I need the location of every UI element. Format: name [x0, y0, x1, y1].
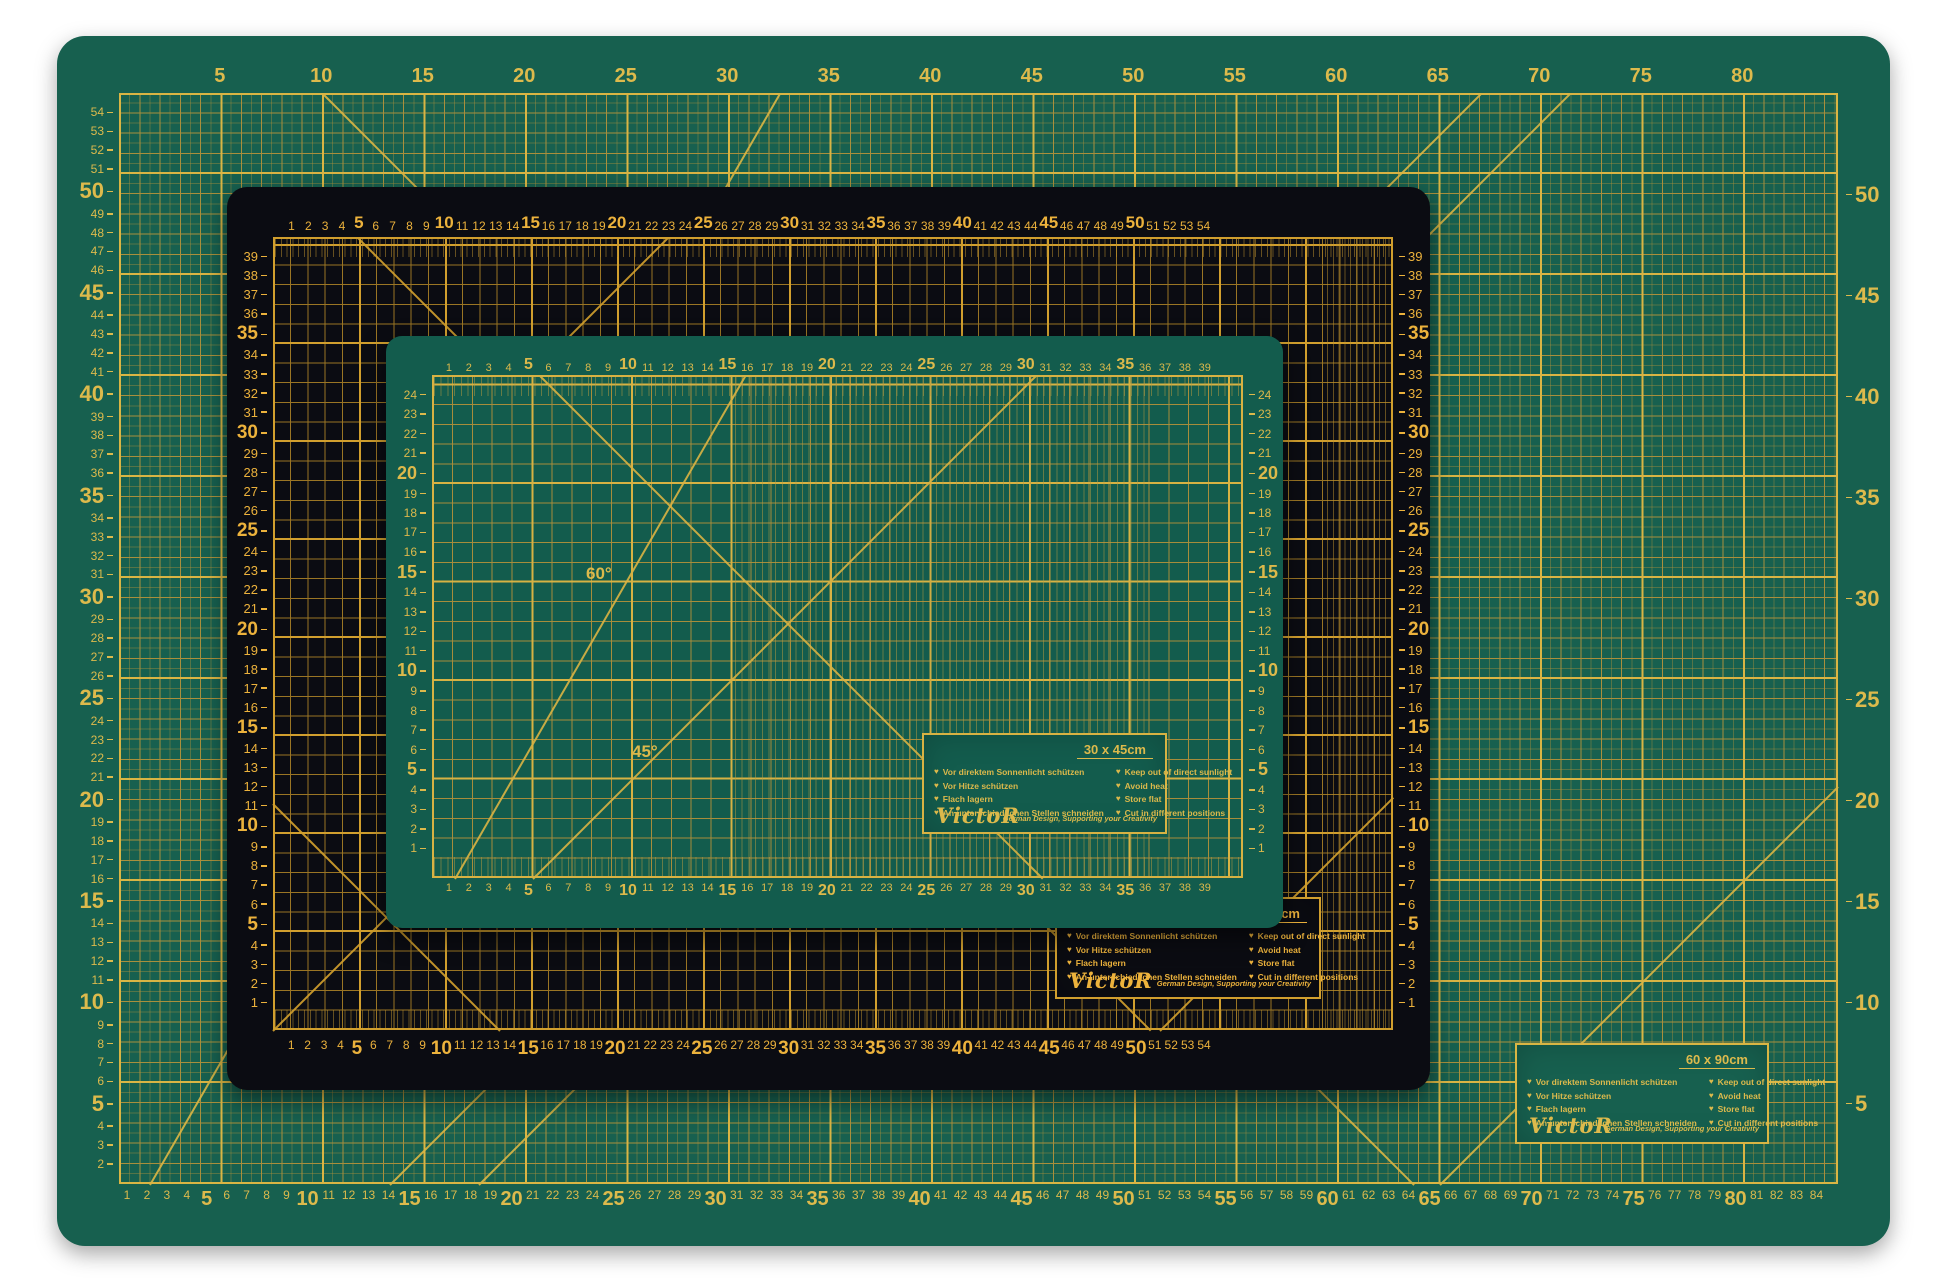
brand-tagline: German Design, Supporting your Creativit…	[1157, 979, 1311, 988]
brand-logo: VictoR	[1529, 1113, 1613, 1138]
ruler-right-black-mat: 3938373635343332313029282726252423222120…	[1399, 247, 1430, 1012]
ruler-top-large-mat: 5101520253035404550556065707580	[169, 56, 1793, 88]
ruler-bottom-black-mat: 1234567891011121314151617181920212223242…	[283, 1038, 1212, 1078]
small-green-cutting-mat: 60° 45° 12345678910111213141516171819202…	[386, 336, 1283, 928]
brand-tagline: German Design, Supporting your Creativit…	[1003, 814, 1157, 823]
care-instructions-english: ♥Keep out of direct sunlight♥Avoid heat♥…	[1116, 766, 1232, 820]
ruler-bottom-small-mat: 1234567891011121314151617181920212223242…	[439, 882, 1215, 912]
info-card-small-mat: 30 x 45cm ♥Vor direktem Sonnenlicht schü…	[922, 733, 1167, 834]
angle-label-45: 45°	[632, 742, 658, 762]
care-instructions-english: ♥Keep out of direct sunlight♥Avoid heat♥…	[1249, 930, 1365, 984]
ruler-left-black-mat: 3938373635343332313029282726252423222120…	[229, 247, 267, 1012]
size-label: 30 x 45cm	[1077, 742, 1153, 759]
brand-tagline: German Design, Supporting your Creativit…	[1605, 1124, 1759, 1133]
product-photo-cutting-mats: 5101520253035404550556065707580 12345678…	[0, 0, 1946, 1285]
ruler-left-small-mat: 242322212019181716151413121110987654321	[388, 385, 426, 858]
info-card-large-mat: 60 x 90cm ♥Vor direktem Sonnenlicht schü…	[1515, 1043, 1769, 1144]
ruler-right-small-mat: 242322212019181716151413121110987654321	[1249, 385, 1279, 858]
ruler-top-black-mat: 1234567891011121314151617181920212223242…	[283, 201, 1212, 233]
angle-label-60: 60°	[586, 564, 612, 584]
size-label: 60 x 90cm	[1679, 1052, 1755, 1069]
ruler-bottom-large-mat: 1234567891011121314151617181920212223242…	[117, 1188, 1826, 1228]
ruler-left-large-mat: 5453525150494847464544434241403938373635…	[69, 103, 113, 1173]
care-instructions-english: ♥Keep out of direct sunlight♥Avoid heat♥…	[1709, 1076, 1825, 1130]
ruler-right-large-mat: 5045403530252015105	[1846, 144, 1890, 1154]
brand-logo: VictoR	[1069, 968, 1153, 993]
ruler-top-small-mat: 1234567891011121314151617181920212223242…	[439, 348, 1215, 374]
